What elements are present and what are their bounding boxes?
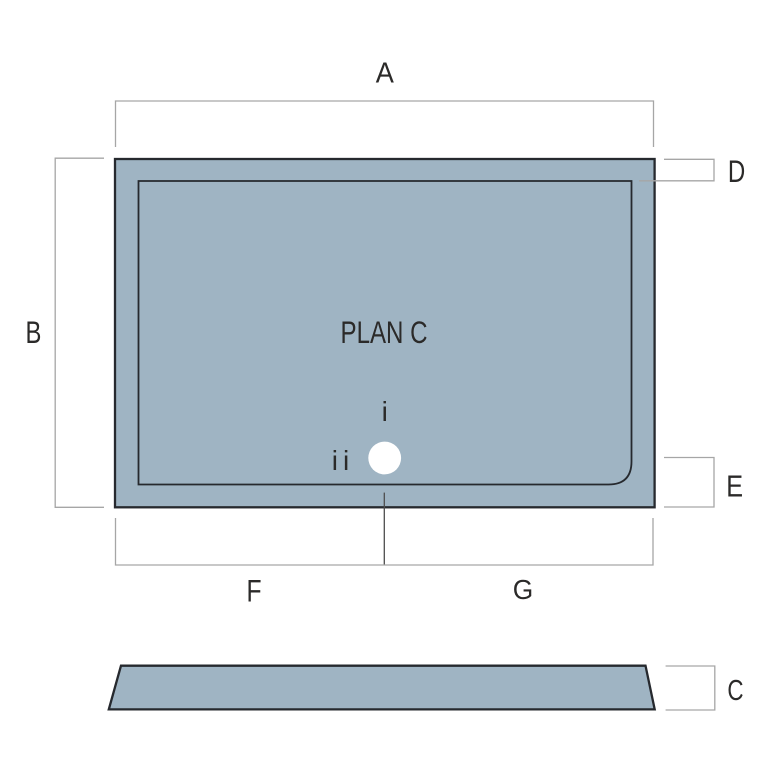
svg-text:F: F	[246, 573, 261, 609]
svg-text:A: A	[376, 57, 394, 89]
svg-text:i: i	[382, 396, 388, 427]
svg-text:PLAN C: PLAN C	[341, 315, 428, 350]
svg-text:G: G	[513, 573, 533, 605]
svg-text:E: E	[726, 469, 743, 503]
svg-text:ii: ii	[332, 445, 354, 476]
svg-text:B: B	[25, 315, 41, 350]
svg-text:D: D	[728, 154, 745, 189]
svg-text:C: C	[727, 673, 743, 707]
